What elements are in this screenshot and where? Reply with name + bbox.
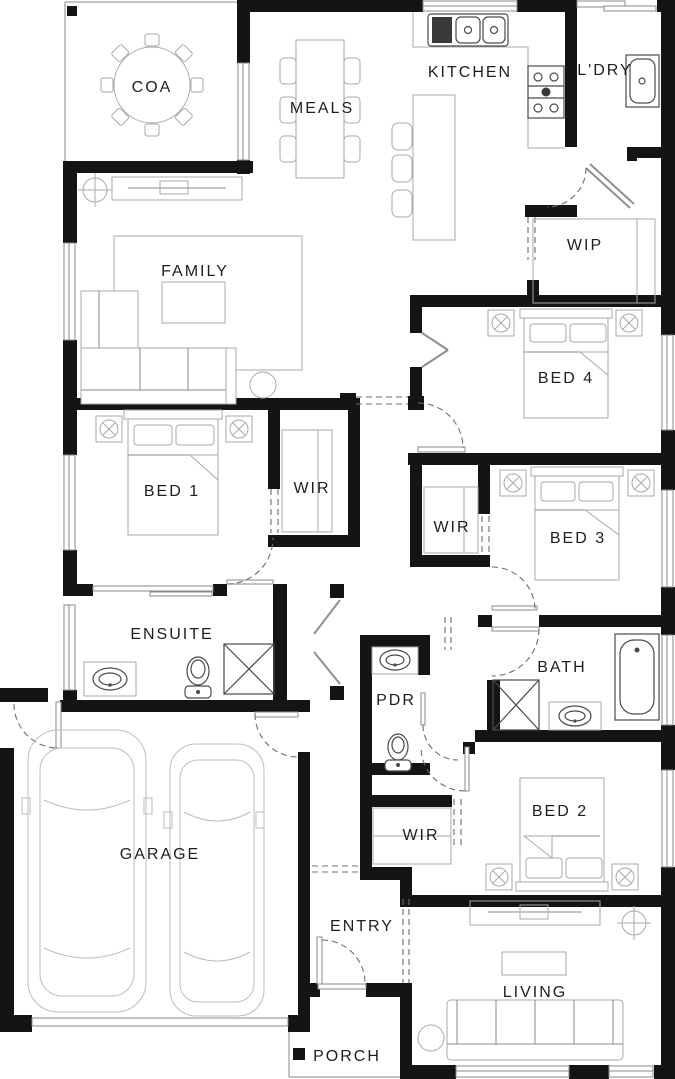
bath-window [662, 635, 673, 725]
bed3-bedside-left [500, 470, 526, 496]
kitchen-sink [428, 14, 508, 46]
kitchen-window [423, 1, 517, 11]
room-label-porch: PORCH [313, 1048, 381, 1065]
pdr-fixtures [372, 647, 418, 771]
bed2-bedside-right [612, 864, 638, 890]
living-sofa [447, 1000, 623, 1060]
bed3-bed [531, 467, 623, 580]
garage-cars [22, 730, 264, 1016]
bathtub [615, 634, 659, 720]
bed3-bedside-right [628, 470, 654, 496]
bed2-furniture [486, 778, 638, 891]
porch-post [293, 1048, 305, 1060]
ensuite-shower [224, 644, 274, 694]
linen-bifold-doors [314, 600, 340, 684]
ensuite-fixtures [84, 644, 274, 698]
living-window-2 [609, 1066, 653, 1077]
family-side-table [250, 372, 276, 398]
family-tv-unit [112, 177, 242, 200]
bed2-bed [516, 778, 608, 891]
bed4-robe-bifold [422, 333, 448, 367]
room-label-laundry: L'DRY [577, 62, 632, 79]
floor-plan: COA MEALS KITCHEN L'DRY WIP FAMILY BED 4… [0, 0, 675, 1079]
front-door [317, 937, 366, 989]
room-label-garage: GARAGE [120, 846, 200, 863]
bed4-door [418, 403, 465, 452]
garage-side-door [14, 702, 61, 748]
room-label-wir-bed2: WIR [402, 827, 439, 844]
room-label-family: FAMILY [161, 263, 229, 280]
bed1-window [64, 455, 75, 550]
wip-cavity-door [547, 164, 634, 208]
ensuite-cavity-slider [93, 586, 213, 596]
coa-post [67, 6, 77, 16]
room-label-bed3: BED 3 [550, 530, 606, 547]
family-room [78, 173, 302, 404]
room-label-bath: BATH [537, 659, 586, 676]
living-side-table [418, 1025, 444, 1051]
cooktop [528, 66, 564, 118]
bed1-bedside-left [96, 416, 122, 442]
pdr-toilet [385, 734, 411, 771]
living-coffee-table [502, 952, 566, 975]
bed4-window [662, 335, 673, 430]
room-label-living: LIVING [503, 984, 567, 1001]
ensuite-toilet [185, 657, 211, 698]
laundry-sliding-door [577, 1, 656, 11]
family-sofa [81, 291, 236, 404]
bed3-window [662, 490, 673, 587]
living-window-1 [456, 1066, 569, 1077]
ensuite-vanity [84, 662, 136, 696]
room-label-bed1: BED 1 [144, 483, 200, 500]
bed1-bedside-right [226, 416, 252, 442]
family-coffee-table [162, 282, 225, 323]
pdr-vanity [372, 647, 418, 674]
room-label-wip: WIP [567, 237, 603, 254]
pdr-door [421, 693, 458, 760]
room-label-coa: COA [132, 79, 173, 96]
wip-shelving [533, 219, 655, 303]
living-room [418, 901, 651, 1060]
bed3-furniture [500, 467, 654, 580]
car-1 [22, 730, 152, 1012]
bed1-bed [124, 410, 222, 535]
bed2-bedside-left [486, 864, 512, 890]
ensuite-window [64, 605, 75, 690]
living-ceiling-fan [617, 906, 651, 940]
garage-internal-door [255, 712, 298, 757]
bath-door [492, 627, 539, 676]
bath-vanity [549, 702, 601, 730]
room-label-entry: ENTRY [330, 918, 394, 935]
bath-fixtures [493, 634, 659, 730]
family-ceiling-fan [78, 173, 112, 207]
family-window [64, 243, 75, 340]
bed4-bedside-right [616, 310, 642, 336]
room-label-meals: MEALS [290, 100, 354, 117]
bed4-bed [520, 309, 612, 418]
room-label-kitchen: KITCHEN [428, 64, 512, 81]
bed3-door [492, 567, 537, 610]
room-label-pdr: PDR [376, 692, 416, 709]
garage-panel-door [32, 1018, 288, 1026]
bed4-furniture [488, 309, 642, 418]
kitchen-island [392, 95, 455, 240]
room-label-bed2: BED 2 [532, 803, 588, 820]
bed4-bedside-left [488, 310, 514, 336]
car-2 [164, 744, 264, 1016]
coa-sliding-door [238, 63, 249, 160]
room-label-wir-bed3: WIR [433, 519, 470, 536]
room-label-wir-bed1: WIR [293, 480, 330, 497]
bed2-window [662, 770, 673, 867]
room-label-ensuite: ENSUITE [130, 626, 213, 643]
floor-plan-drawing: COA MEALS KITCHEN L'DRY WIP FAMILY BED 4… [0, 0, 675, 1079]
room-label-bed4: BED 4 [538, 370, 594, 387]
ensuite-door [227, 538, 273, 584]
bed1-furniture [96, 410, 252, 535]
